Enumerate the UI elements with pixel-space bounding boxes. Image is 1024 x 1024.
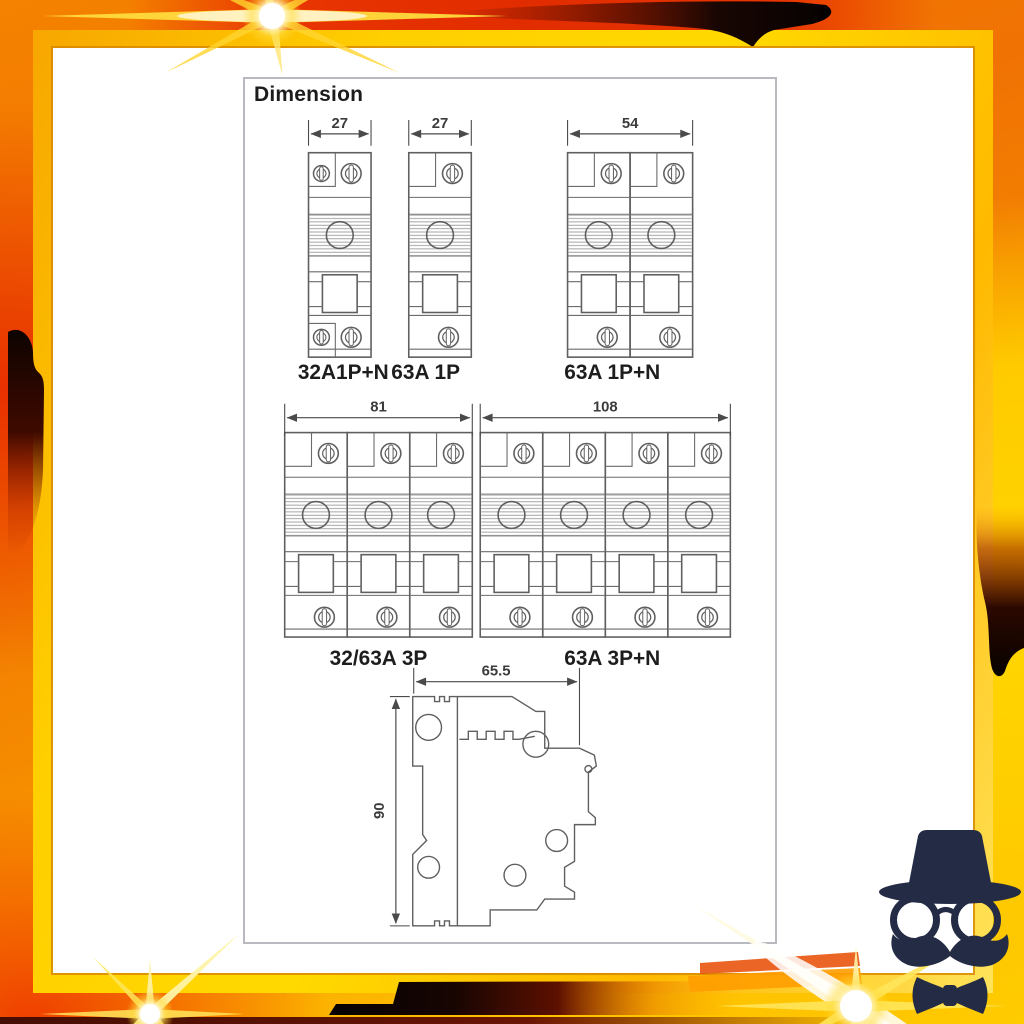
dim-label: 81 bbox=[370, 400, 387, 416]
product-label-63a-3pn: 63A 3P+N bbox=[564, 647, 660, 670]
front-view-32-63a-3p bbox=[285, 433, 473, 637]
dimension-side-width: 65.5 bbox=[414, 664, 580, 745]
product-label-32-63a-3p: 32/63A 3P bbox=[330, 647, 428, 670]
side-view-drawing bbox=[413, 697, 597, 926]
dimension-63a-3pn: 108 bbox=[480, 400, 730, 436]
dimension-32a-1pn: 27 bbox=[309, 116, 372, 146]
dimension-32-63a-3p: 81 bbox=[285, 400, 473, 436]
product-image-canvas: Dimension bbox=[0, 0, 1024, 1024]
product-label-32a-1pn: 32A1P+N bbox=[298, 361, 389, 384]
front-view-32a-1pn bbox=[309, 153, 372, 357]
product-label-63a-1pn: 63A 1P+N bbox=[564, 361, 660, 384]
maroon-bottom-strip bbox=[0, 1017, 880, 1024]
dimension-63a-1pn: 54 bbox=[568, 116, 693, 146]
dim-label: 65.5 bbox=[482, 664, 511, 680]
technical-drawing: 27 32A1P+N 27 63A 1P bbox=[245, 79, 775, 942]
round-glasses-icon bbox=[894, 899, 998, 942]
dim-label: 90 bbox=[372, 802, 388, 819]
dimension-side-height: 90 bbox=[372, 697, 410, 926]
brand-mascot-logo bbox=[876, 826, 1024, 1014]
front-view-63a-3pn bbox=[480, 433, 730, 637]
product-label-63a-1p: 63A 1P bbox=[391, 361, 460, 384]
bow-tie-icon bbox=[913, 977, 988, 1014]
dim-label: 108 bbox=[593, 400, 618, 416]
white-content-area: Dimension bbox=[53, 48, 973, 973]
dim-label: 27 bbox=[332, 116, 349, 132]
front-view-63a-1p bbox=[409, 153, 472, 357]
dim-label: 27 bbox=[432, 116, 449, 132]
dimension-63a-1p: 27 bbox=[409, 116, 472, 146]
dimension-diagram-panel: Dimension bbox=[243, 77, 777, 944]
front-view-63a-1pn bbox=[568, 153, 693, 357]
fedora-hat-icon bbox=[908, 830, 992, 888]
dim-label: 54 bbox=[622, 116, 639, 132]
